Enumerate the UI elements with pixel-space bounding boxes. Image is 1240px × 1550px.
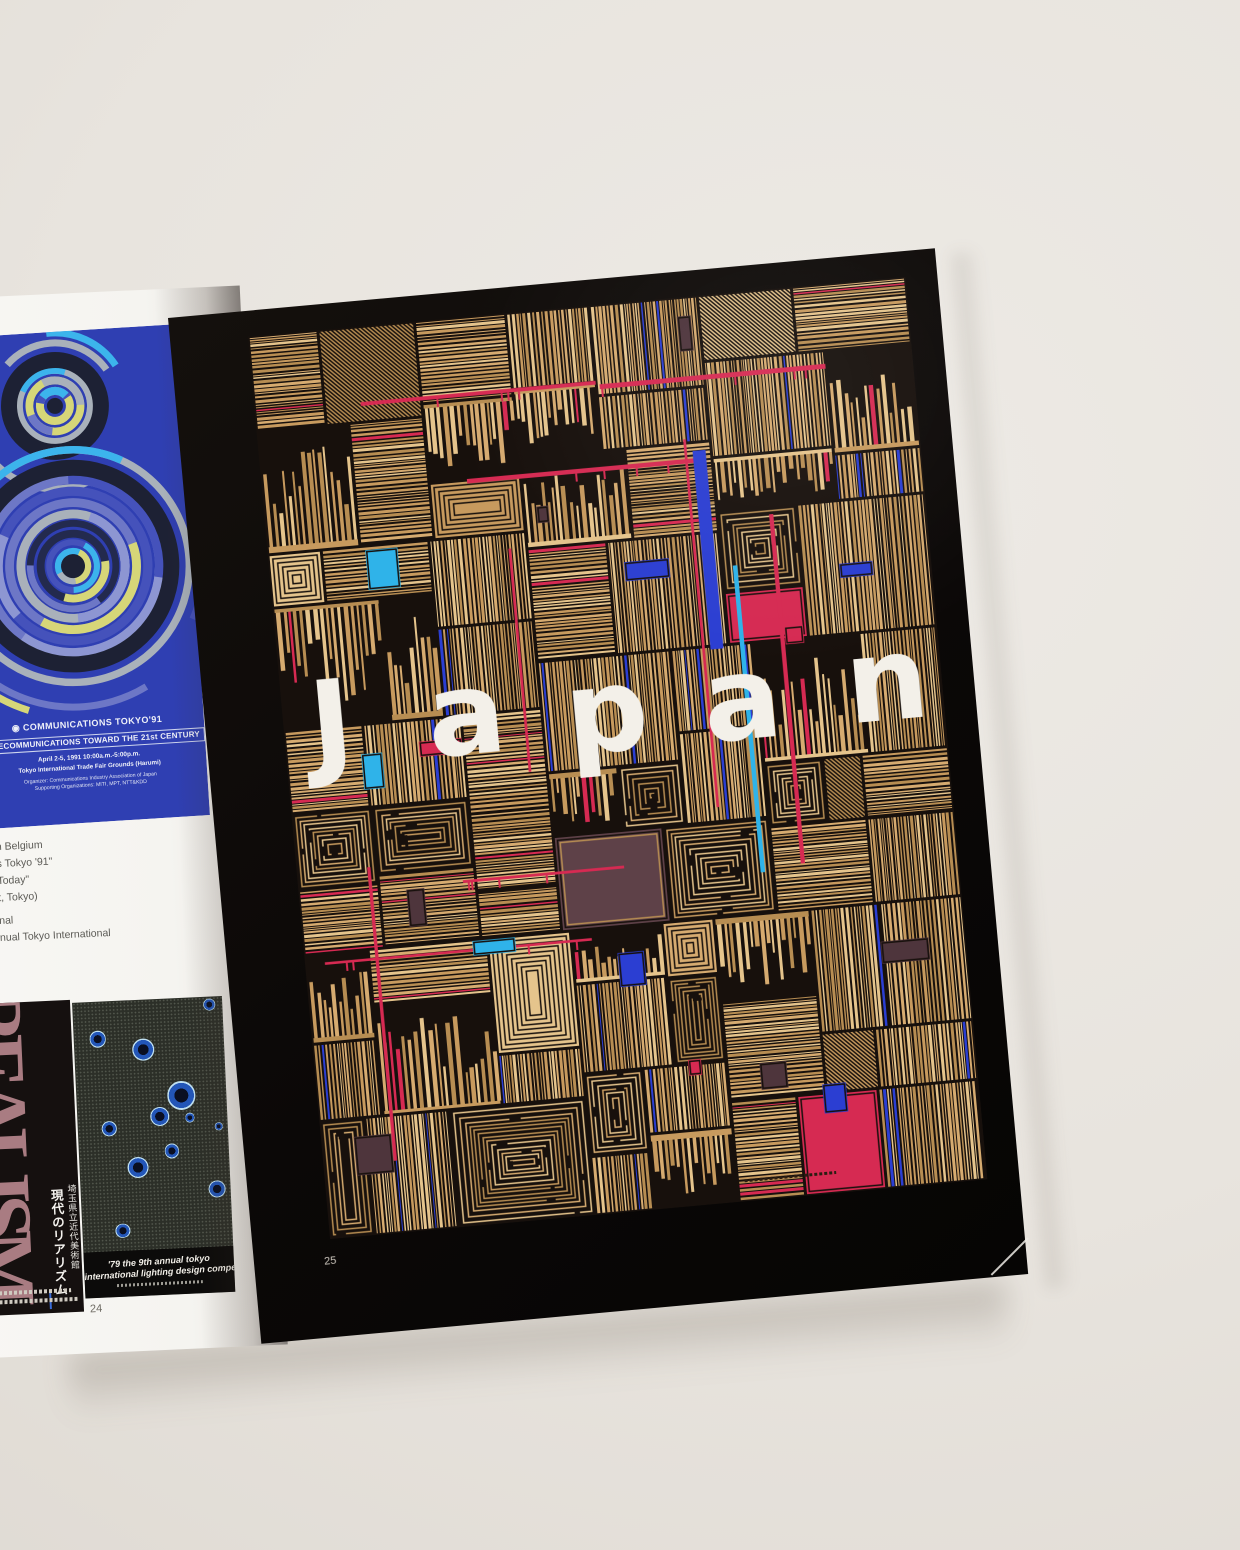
table-surface: ◉ COMMUNICATIONS TOKYO'91 TELECOMMUNICAT… bbox=[0, 0, 1240, 1550]
glow-circle bbox=[164, 1143, 179, 1158]
glow-circle bbox=[89, 1030, 107, 1048]
glow-circle bbox=[127, 1156, 150, 1179]
glow-circle bbox=[115, 1223, 130, 1238]
glow-circle bbox=[132, 1038, 155, 1061]
glow-circle bbox=[102, 1121, 117, 1136]
credit-line: nual Tokyo International bbox=[0, 925, 111, 947]
right-page: Japan 25 bbox=[168, 248, 1028, 1344]
realism-big-word: REALISM bbox=[0, 1000, 53, 1300]
micro-text-row bbox=[117, 1280, 203, 1287]
page-number-24: 24 bbox=[90, 1303, 103, 1316]
micro-text-row bbox=[0, 1297, 78, 1306]
glow-circle bbox=[150, 1106, 170, 1126]
realism-museum-japanese: 埼玉県立近代美術館 bbox=[65, 1184, 82, 1270]
communications-poster-text: ◉ COMMUNICATIONS TOKYO'91 TELECOMMUNICAT… bbox=[0, 712, 202, 797]
page-gloss bbox=[168, 248, 1028, 1344]
credits-text-block: n Belgium s Tokyo '91" Today" t, Tokyo) … bbox=[0, 834, 111, 947]
globe-icon: ◉ bbox=[11, 723, 20, 733]
realism-exhibition-poster: REALISM 現代のリアリズム 埼玉県立近代美術館 bbox=[0, 1000, 84, 1318]
